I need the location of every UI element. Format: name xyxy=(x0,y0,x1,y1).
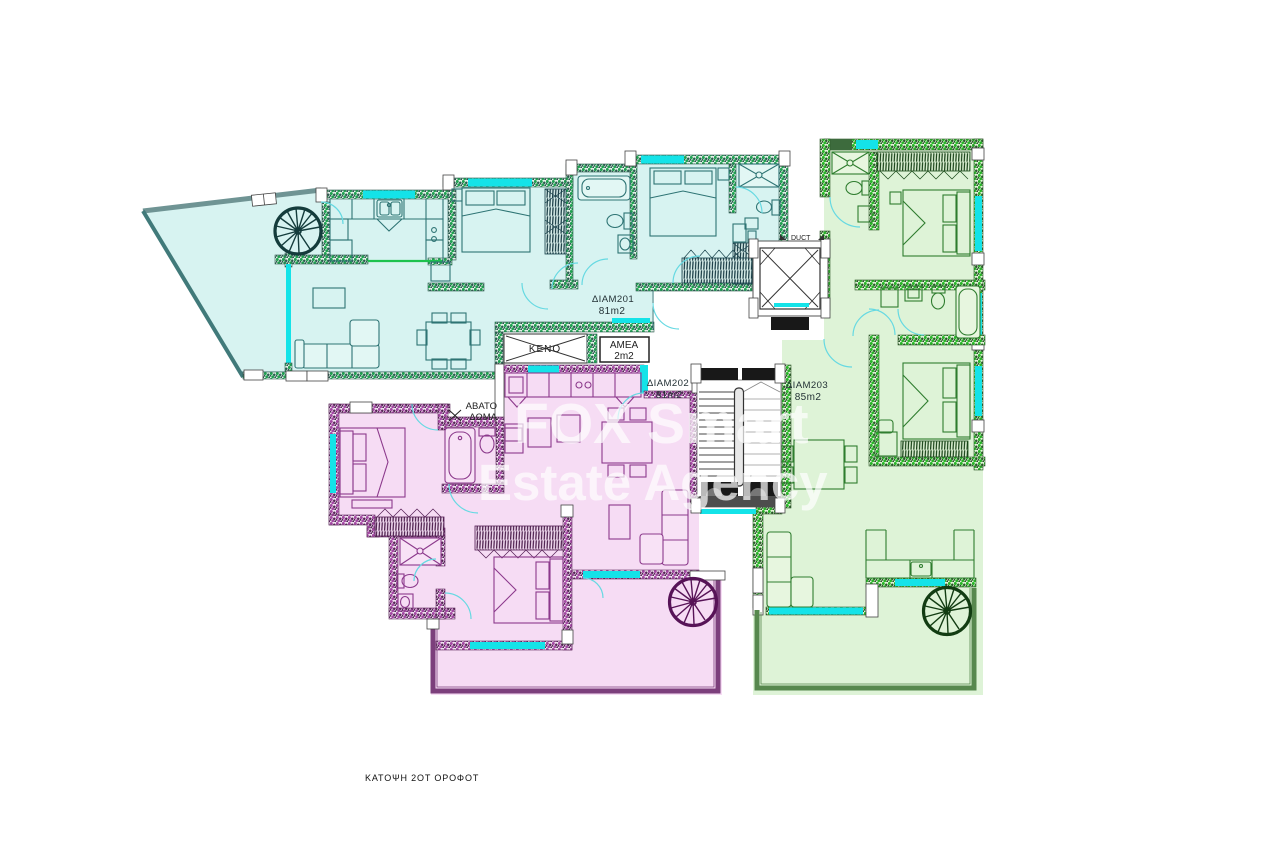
svg-text:AMEA: AMEA xyxy=(610,340,639,351)
svg-text:DUCT: DUCT xyxy=(791,235,811,242)
svg-text:2m2: 2m2 xyxy=(614,351,634,362)
svg-text:ΔΙΑΜ201: ΔΙΑΜ201 xyxy=(592,294,634,305)
svg-text:ΔΩΜΑ: ΔΩΜΑ xyxy=(469,412,497,423)
svg-text:ΑΒΑΤΟ: ΑΒΑΤΟ xyxy=(466,401,497,412)
svg-text:ΚΕΝΟ: ΚΕΝΟ xyxy=(529,344,561,355)
svg-text:ΚΑΤΟΨΗ 2ΟΤ ΟΡΟΦΟΤ: ΚΑΤΟΨΗ 2ΟΤ ΟΡΟΦΟΤ xyxy=(365,773,479,783)
svg-text:81m2: 81m2 xyxy=(599,306,626,317)
svg-text:ΔΙΑΜ203: ΔΙΑΜ203 xyxy=(786,380,828,391)
svg-text:FOX Smart: FOX Smart xyxy=(514,392,809,456)
svg-text:ΔΙΑΜ202: ΔΙΑΜ202 xyxy=(647,378,689,389)
svg-text:Estate Agency: Estate Agency xyxy=(478,454,828,511)
